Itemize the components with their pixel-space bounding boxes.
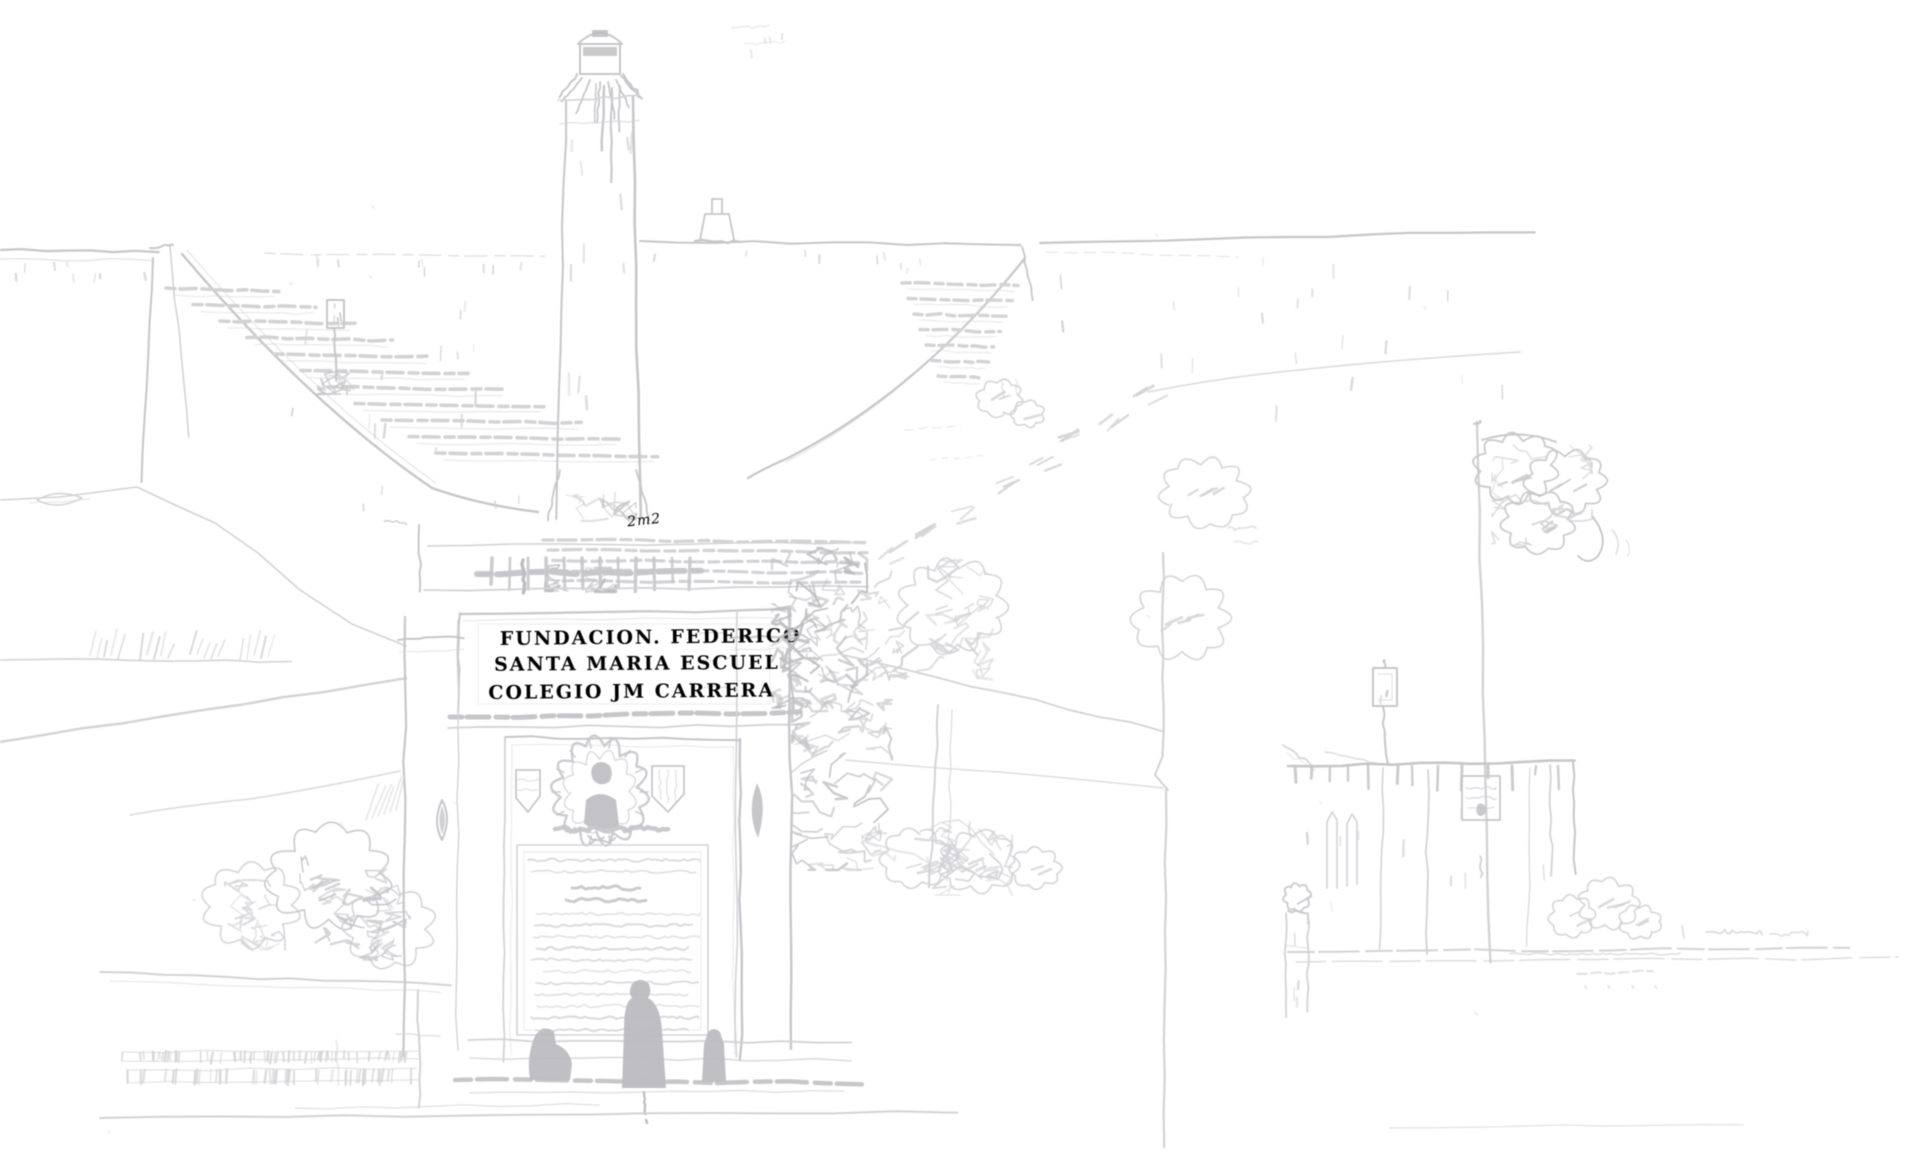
inscription-line-1: FUNDACION. FEDERICO xyxy=(500,625,802,650)
right-boundary-wall xyxy=(1283,660,1898,1128)
inscription-line-3: COLEGIO JM CARRERA xyxy=(488,679,775,704)
entrance-gate xyxy=(366,542,868,1057)
left-landscape xyxy=(0,487,451,992)
monument-sketch: FUNDACION. FEDERICO SANTA MARIA ESCUEL C… xyxy=(0,0,1920,1153)
memorial-tower xyxy=(384,30,868,592)
curtain-walls xyxy=(0,25,1535,512)
trees-foliage xyxy=(772,548,1062,895)
flagpole-flag xyxy=(1473,421,1630,962)
inscription-line-2: SANTA MARIA ESCUEL xyxy=(494,652,780,676)
visitor-figures xyxy=(529,980,726,1123)
handwritten-annotation: 2m2 xyxy=(625,511,662,531)
hillside xyxy=(843,352,1520,1147)
sketch-page: FUNDACION. FEDERICO SANTA MARIA ESCUEL C… xyxy=(0,0,1920,1153)
